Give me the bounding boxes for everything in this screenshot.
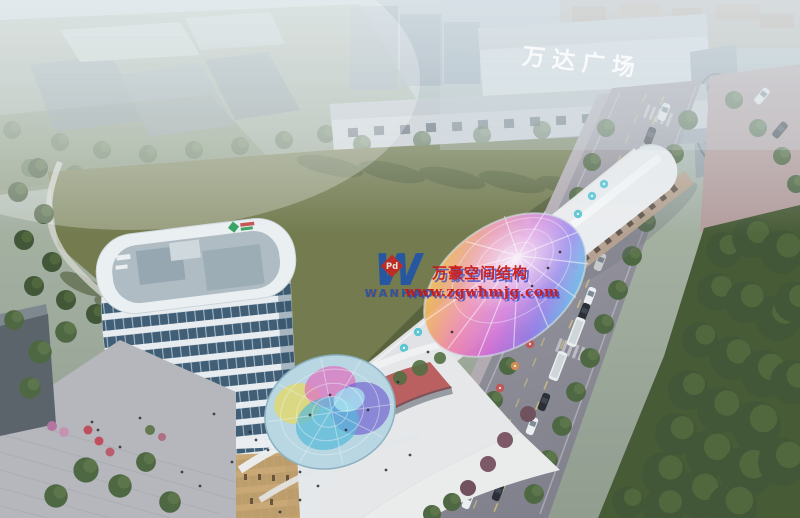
watermark-website: www.zgwhmjg.com www.zgwhmjg.com: [404, 285, 561, 303]
watermark-company-text: 万豪空间结构: [431, 264, 528, 282]
aerial-rendering: 万达广场 W Pd WANHAO WANHAO 万豪空间结构 万豪空间结构 ww…: [0, 0, 800, 518]
watermark-website-text: www.zgwhmjg.com: [404, 285, 559, 301]
watermark-badge-text: Pd: [386, 262, 398, 272]
rendering-canvas: 万达广场 W Pd WANHAO WANHAO 万豪空间结构 万豪空间结构 ww…: [0, 0, 800, 518]
watermark-company: 万豪空间结构 万豪空间结构: [431, 264, 531, 285]
